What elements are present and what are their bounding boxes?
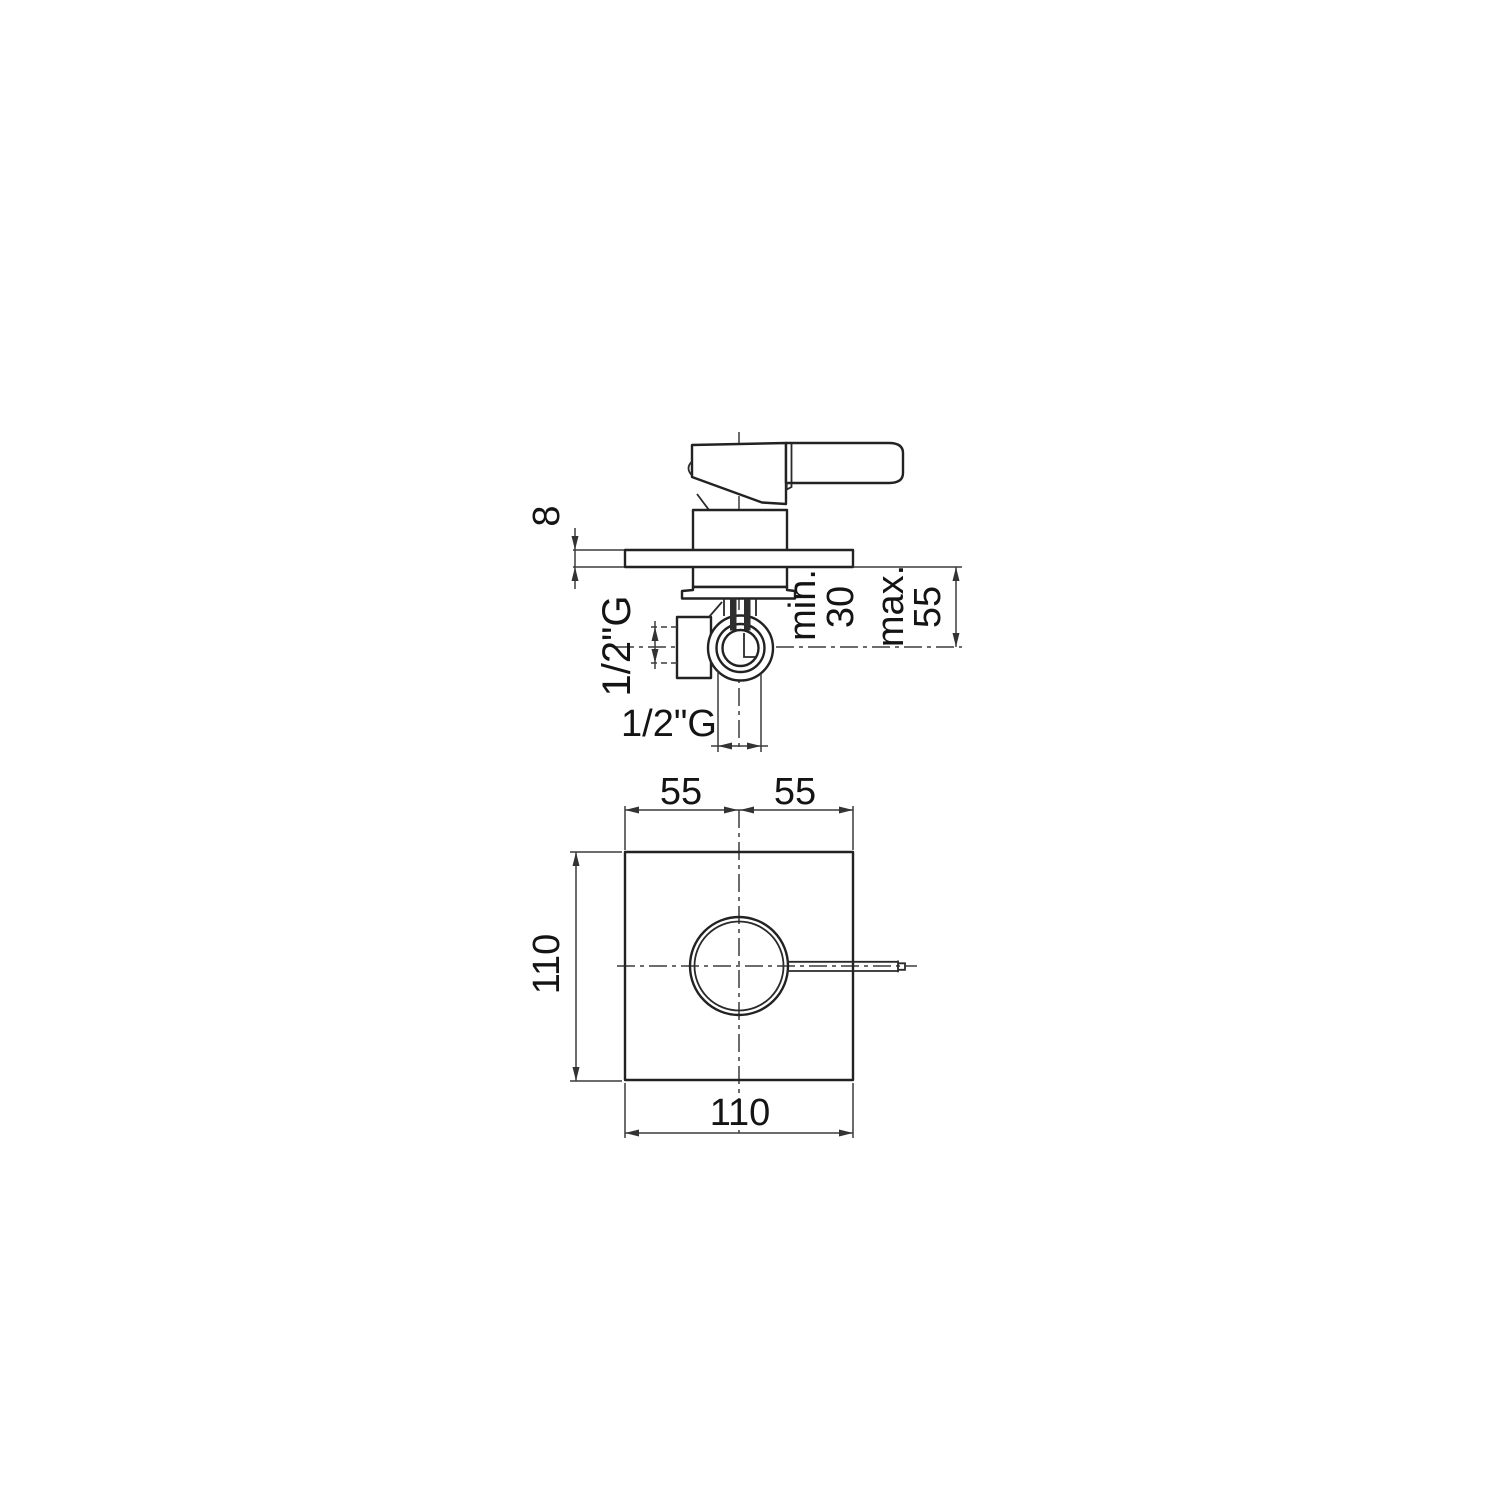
- dimension-height: 110: [526, 852, 622, 1081]
- dimension-width: 110: [625, 1083, 853, 1138]
- dimension-bottom-port: 1/2"G: [621, 703, 768, 750]
- dimension-arrow: [953, 567, 960, 581]
- dimension-install-depth: min. 30 max. 55: [782, 565, 962, 647]
- handle-side: [689, 443, 904, 510]
- dimension-half-widths: 55 55: [625, 771, 853, 850]
- handle-lever: [786, 443, 903, 483]
- dimension-side-port: 1/2"G: [595, 596, 679, 697]
- depth-max-value: 55: [907, 586, 949, 628]
- escutcheon-plate-side: [625, 550, 853, 567]
- dimension-arrow: [740, 807, 754, 814]
- body-chamfer-line: [709, 602, 722, 617]
- dimension-arrow: [572, 567, 579, 581]
- handle-neck-line: [697, 494, 709, 510]
- dimension-arrow: [839, 807, 853, 814]
- side-port-label: 1/2"G: [595, 596, 639, 697]
- dimension-arrow: [953, 633, 960, 647]
- drawing-canvas: 8 1/2"G 1/2"G min. 30 max. 55: [0, 0, 1500, 1500]
- dimension-arrow: [747, 743, 761, 750]
- handle-cap: [692, 443, 786, 504]
- depth-min-value: 30: [820, 586, 862, 628]
- dimension-arrow: [573, 852, 580, 866]
- width-value: 110: [710, 1092, 771, 1134]
- half-width-left-value: 55: [660, 771, 702, 813]
- depth-min-label: min.: [782, 569, 824, 641]
- valve-inner-circle: [723, 630, 759, 666]
- dimension-arrow: [718, 743, 732, 750]
- dimension-plate-thickness: 8: [526, 505, 624, 589]
- side-inlet-port: [677, 617, 711, 678]
- dimension-arrow: [625, 807, 639, 814]
- extension-lines: [573, 550, 624, 567]
- dimension-arrow: [839, 1130, 853, 1137]
- side-view: 8 1/2"G 1/2"G min. 30 max. 55: [526, 432, 962, 752]
- dimension-arrow: [573, 1067, 580, 1081]
- valve-stem-right: [744, 599, 751, 631]
- valve-stem-outline: [724, 599, 756, 617]
- valve-stem-left: [730, 599, 737, 631]
- extension-lines: [570, 852, 622, 1081]
- front-view: 55 55 110 110: [526, 771, 917, 1138]
- bottom-port-label: 1/2"G: [621, 703, 717, 745]
- dimension-arrow: [652, 649, 659, 663]
- plate-thickness-label: 8: [526, 505, 568, 526]
- cartridge-body: [693, 510, 787, 587]
- valve-body: [708, 599, 773, 681]
- technical-drawing: 8 1/2"G 1/2"G min. 30 max. 55: [0, 0, 1500, 1500]
- dimension-arrow: [625, 1130, 639, 1137]
- half-width-right-value: 55: [774, 771, 816, 813]
- height-value: 110: [526, 934, 568, 995]
- depth-max-label: max.: [870, 565, 912, 647]
- dimension-arrow: [724, 807, 738, 814]
- cartridge-flange: [682, 587, 795, 599]
- dimension-arrow: [652, 627, 659, 641]
- dimension-arrow: [572, 536, 579, 550]
